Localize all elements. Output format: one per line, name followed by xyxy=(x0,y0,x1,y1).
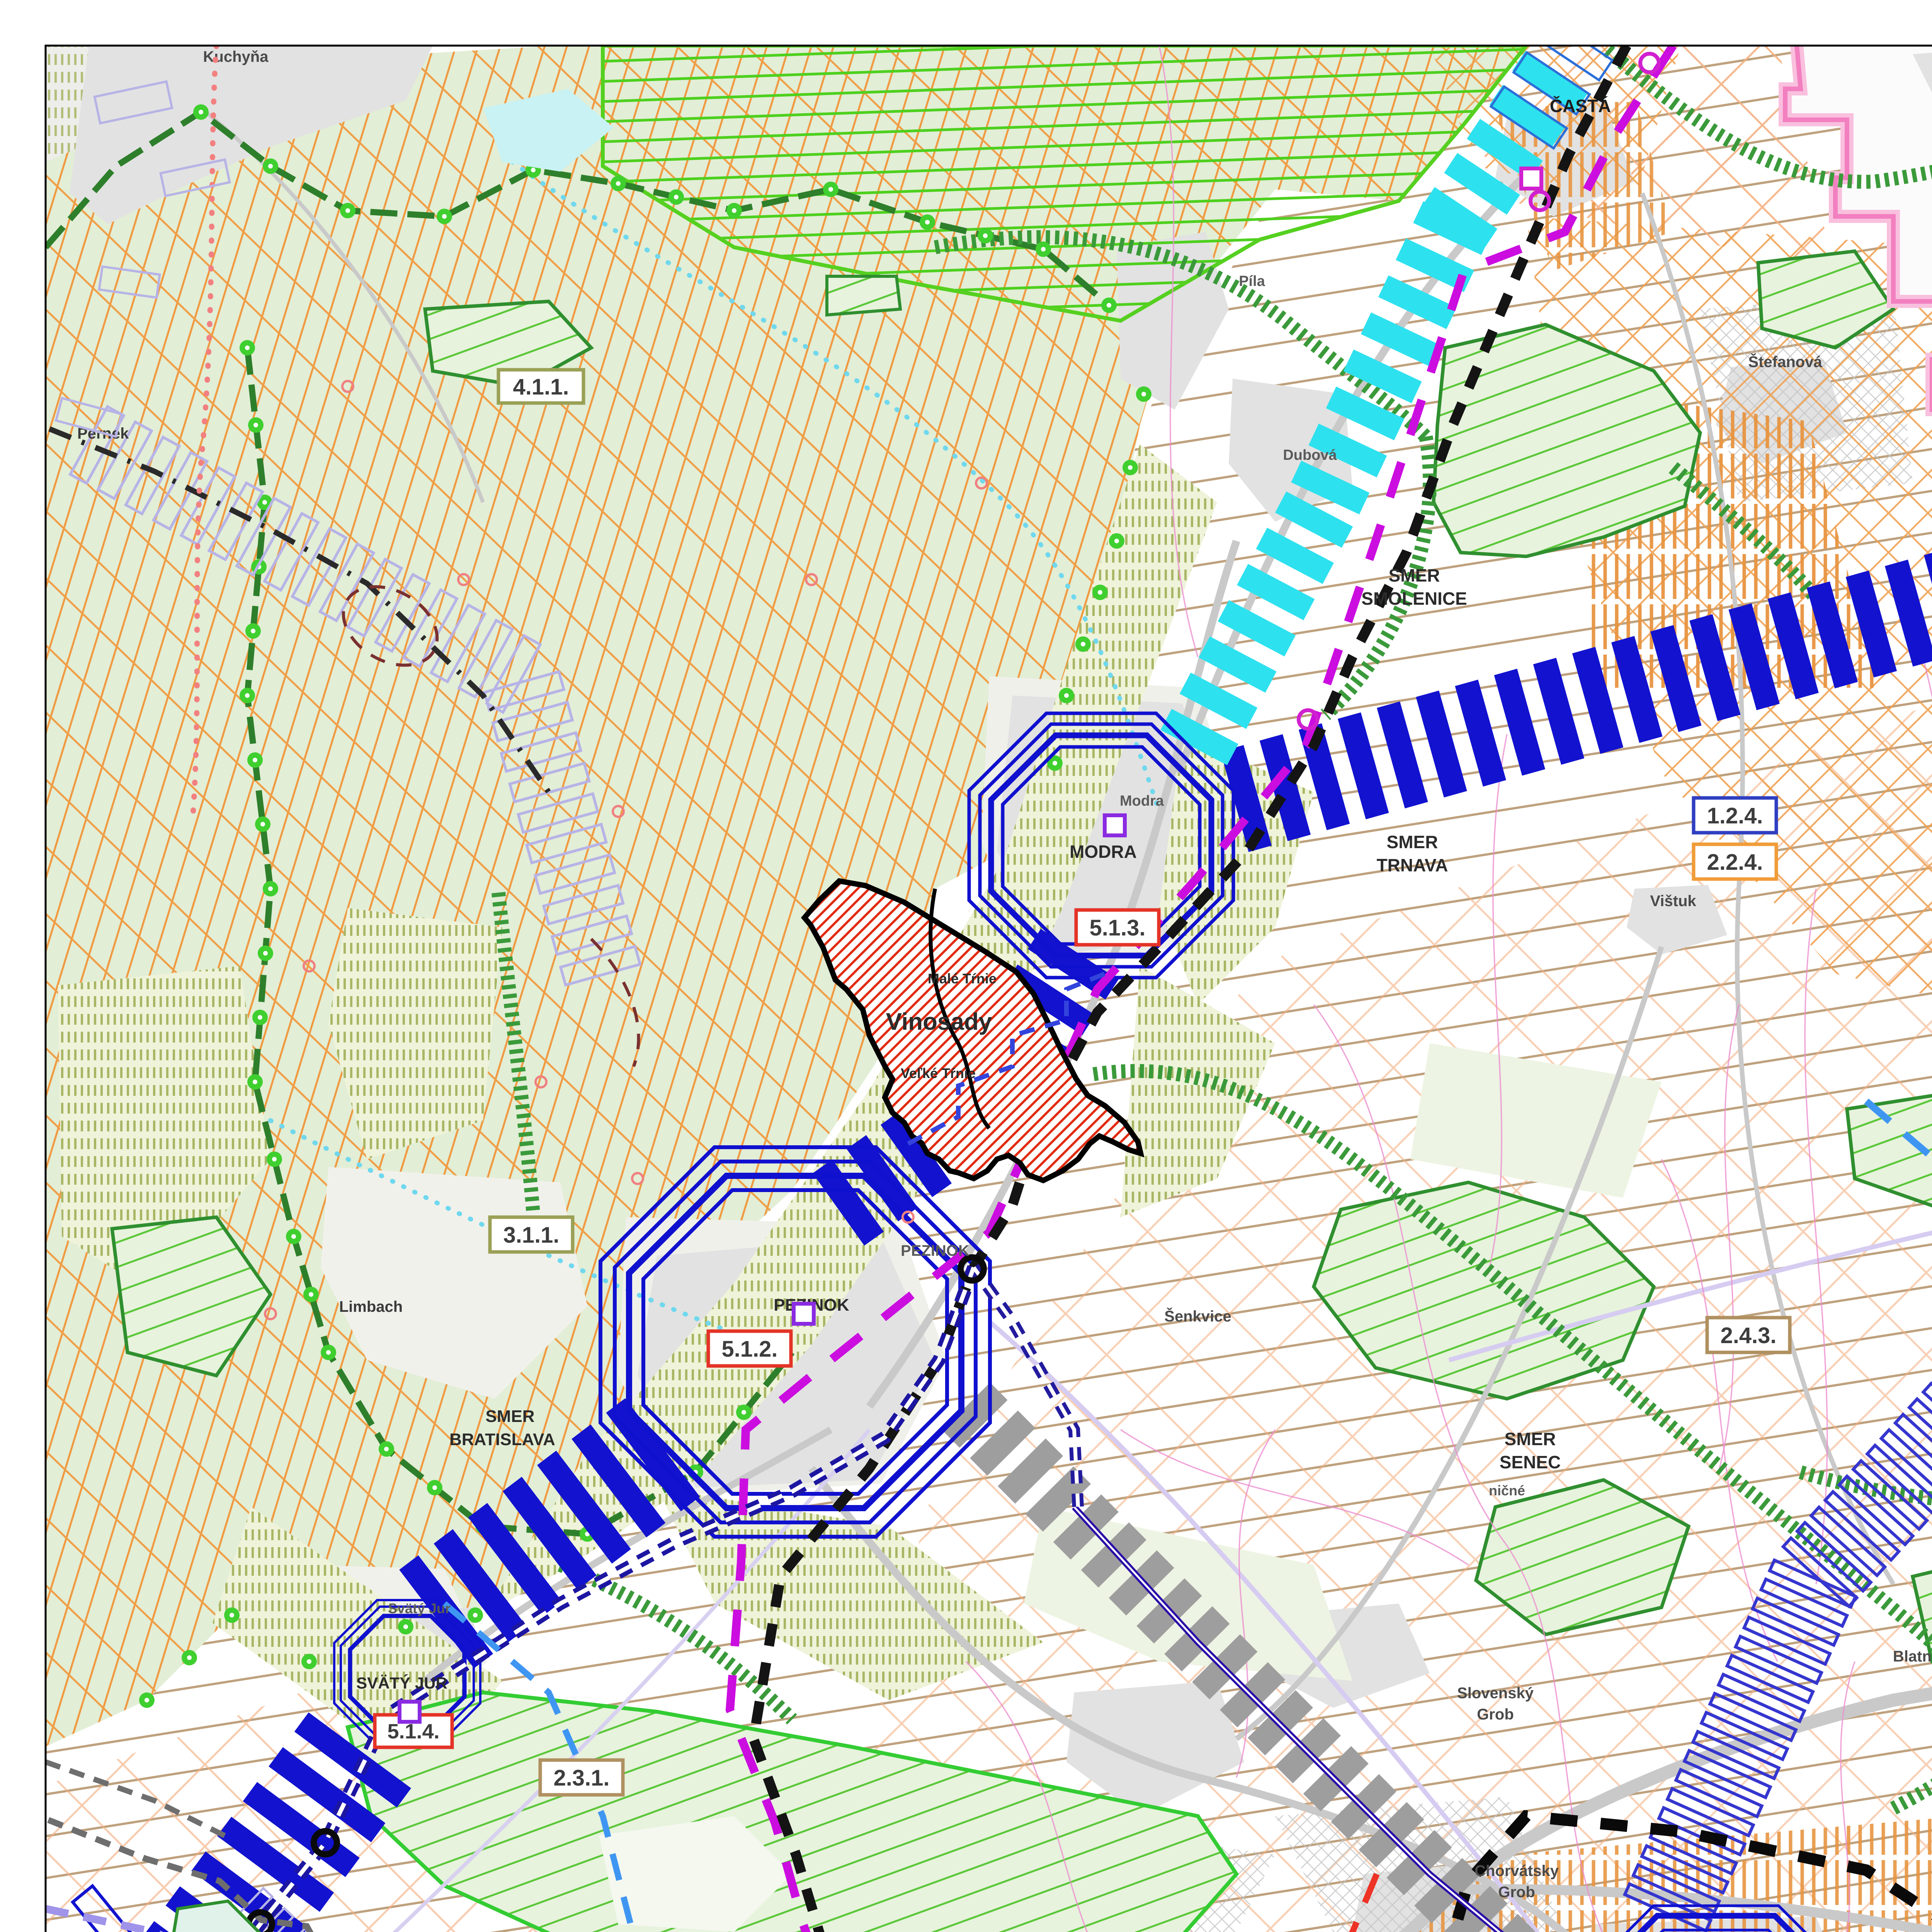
svg-text:BRATISLAVA: BRATISLAVA xyxy=(449,1430,555,1449)
svg-text:Šenkvice: Šenkvice xyxy=(1164,1307,1231,1325)
svg-text:Slovenský: Slovenský xyxy=(1457,1685,1534,1702)
svg-text:TRNAVA: TRNAVA xyxy=(1377,855,1448,875)
svg-text:Dubová: Dubová xyxy=(1283,447,1337,463)
svg-text:Modra: Modra xyxy=(1120,793,1164,809)
svg-text:2.3.1.: 2.3.1. xyxy=(553,1765,609,1791)
svg-text:SMER: SMER xyxy=(1389,565,1440,585)
svg-text:SMOLENICE: SMOLENICE xyxy=(1361,588,1467,609)
svg-text:Grob: Grob xyxy=(1498,1884,1535,1901)
svg-text:Veľké Tŕnie: Veľké Tŕnie xyxy=(901,1065,976,1081)
svg-text:1.2.4.: 1.2.4. xyxy=(1707,803,1763,828)
svg-text:SENEC: SENEC xyxy=(1500,1452,1561,1472)
svg-text:MODRA: MODRA xyxy=(1070,842,1137,862)
svg-text:PEZINOK: PEZINOK xyxy=(901,1242,969,1259)
svg-text:Svätý Jur: Svätý Jur xyxy=(388,1600,451,1616)
svg-text:Vinosady: Vinosady xyxy=(886,1009,992,1035)
svg-text:Píla: Píla xyxy=(1239,273,1265,289)
svg-text:Vištuk: Vištuk xyxy=(1650,893,1696,910)
svg-text:4.1.1.: 4.1.1. xyxy=(513,374,569,400)
svg-text:Grob: Grob xyxy=(1477,1706,1514,1723)
svg-text:Malé Tŕnie: Malé Tŕnie xyxy=(928,971,997,986)
svg-text:5.1.2.: 5.1.2. xyxy=(721,1337,777,1362)
svg-text:SMER: SMER xyxy=(1387,832,1438,852)
svg-text:3.1.1.: 3.1.1. xyxy=(503,1223,559,1248)
svg-text:Blatné: Blatné xyxy=(1893,1648,1932,1665)
svg-text:SMER: SMER xyxy=(1505,1429,1556,1449)
svg-text:Limbach: Limbach xyxy=(339,1298,403,1315)
svg-text:SMER: SMER xyxy=(485,1407,534,1426)
svg-text:2.2.4.: 2.2.4. xyxy=(1707,850,1763,875)
svg-text:Štefanová: Štefanová xyxy=(1748,353,1822,371)
svg-text:Chorvátsky: Chorvátsky xyxy=(1475,1862,1559,1879)
svg-text:2.4.3.: 2.4.3. xyxy=(1720,1323,1776,1348)
svg-text:Kuchyňa: Kuchyňa xyxy=(203,48,269,65)
svg-text:ničné: ničné xyxy=(1489,1483,1525,1498)
svg-text:5.1.3.: 5.1.3. xyxy=(1089,915,1145,940)
svg-text:ČASTÁ: ČASTÁ xyxy=(1550,96,1611,116)
svg-text:SVÄTÝ JUR: SVÄTÝ JUR xyxy=(356,1674,447,1692)
